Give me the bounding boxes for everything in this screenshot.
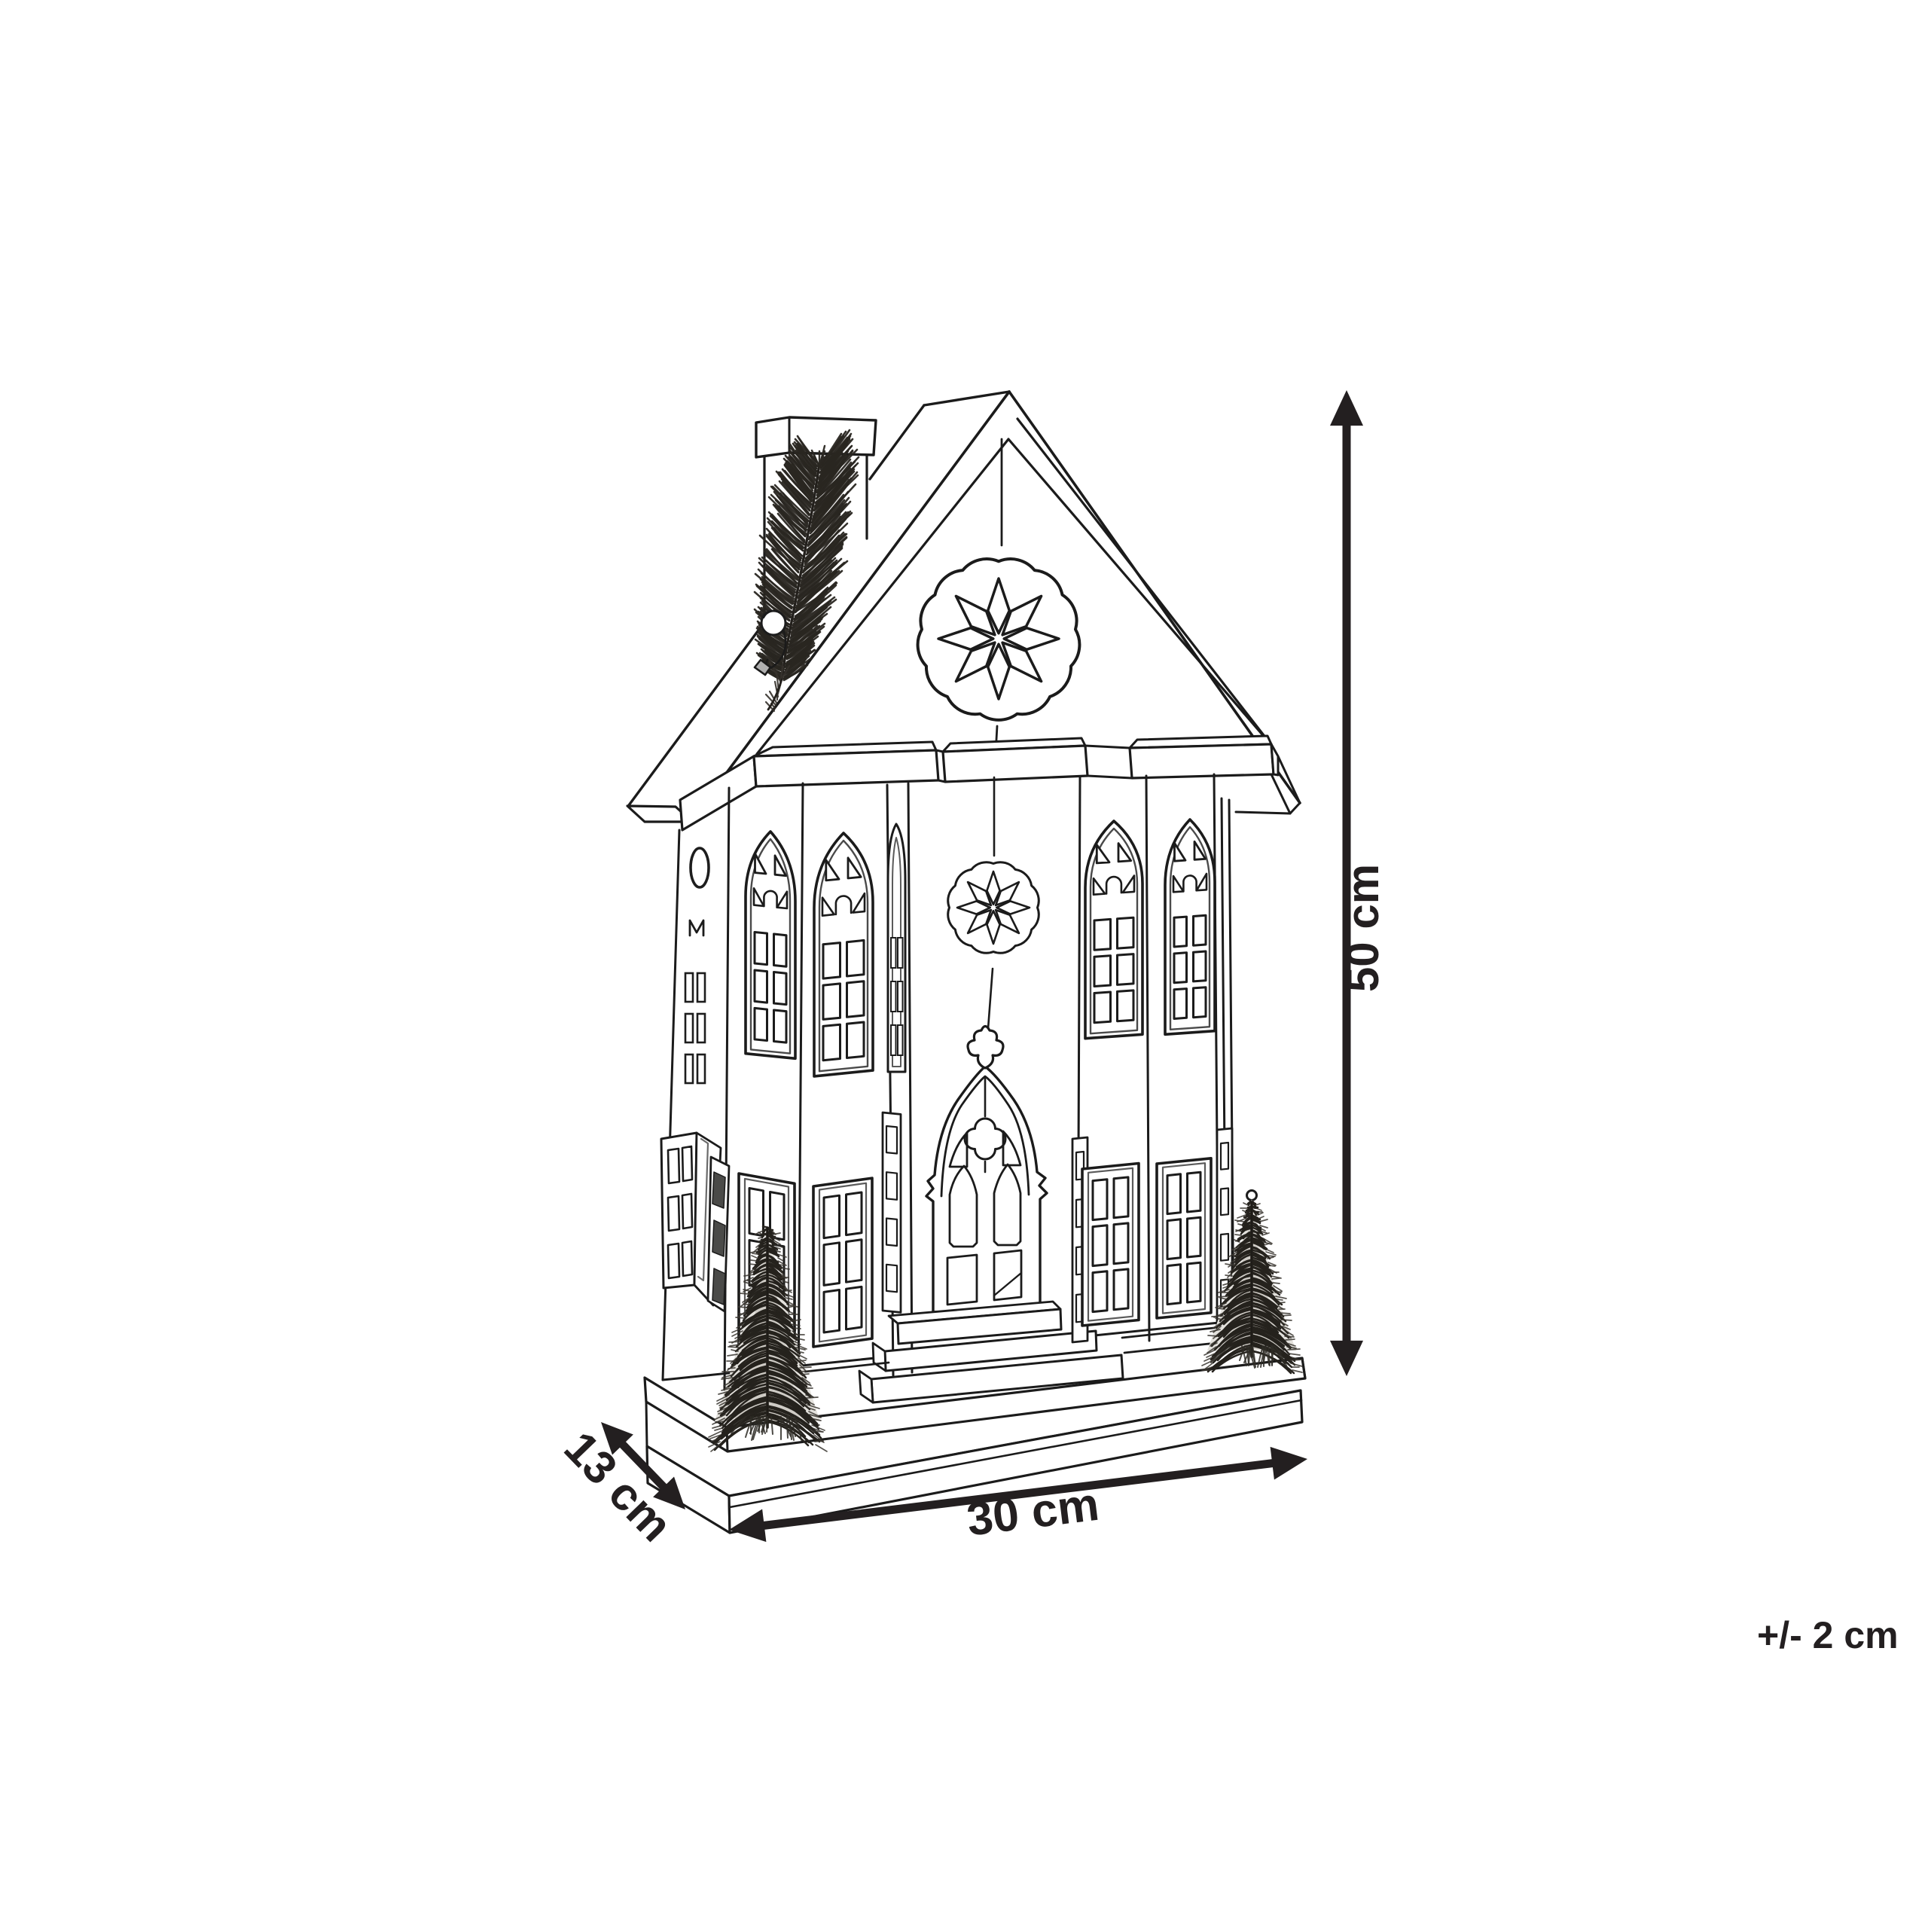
svg-text:+/- 2 cm: +/- 2 cm [1757,1614,1899,1656]
svg-text:50 cm: 50 cm [1338,864,1388,992]
